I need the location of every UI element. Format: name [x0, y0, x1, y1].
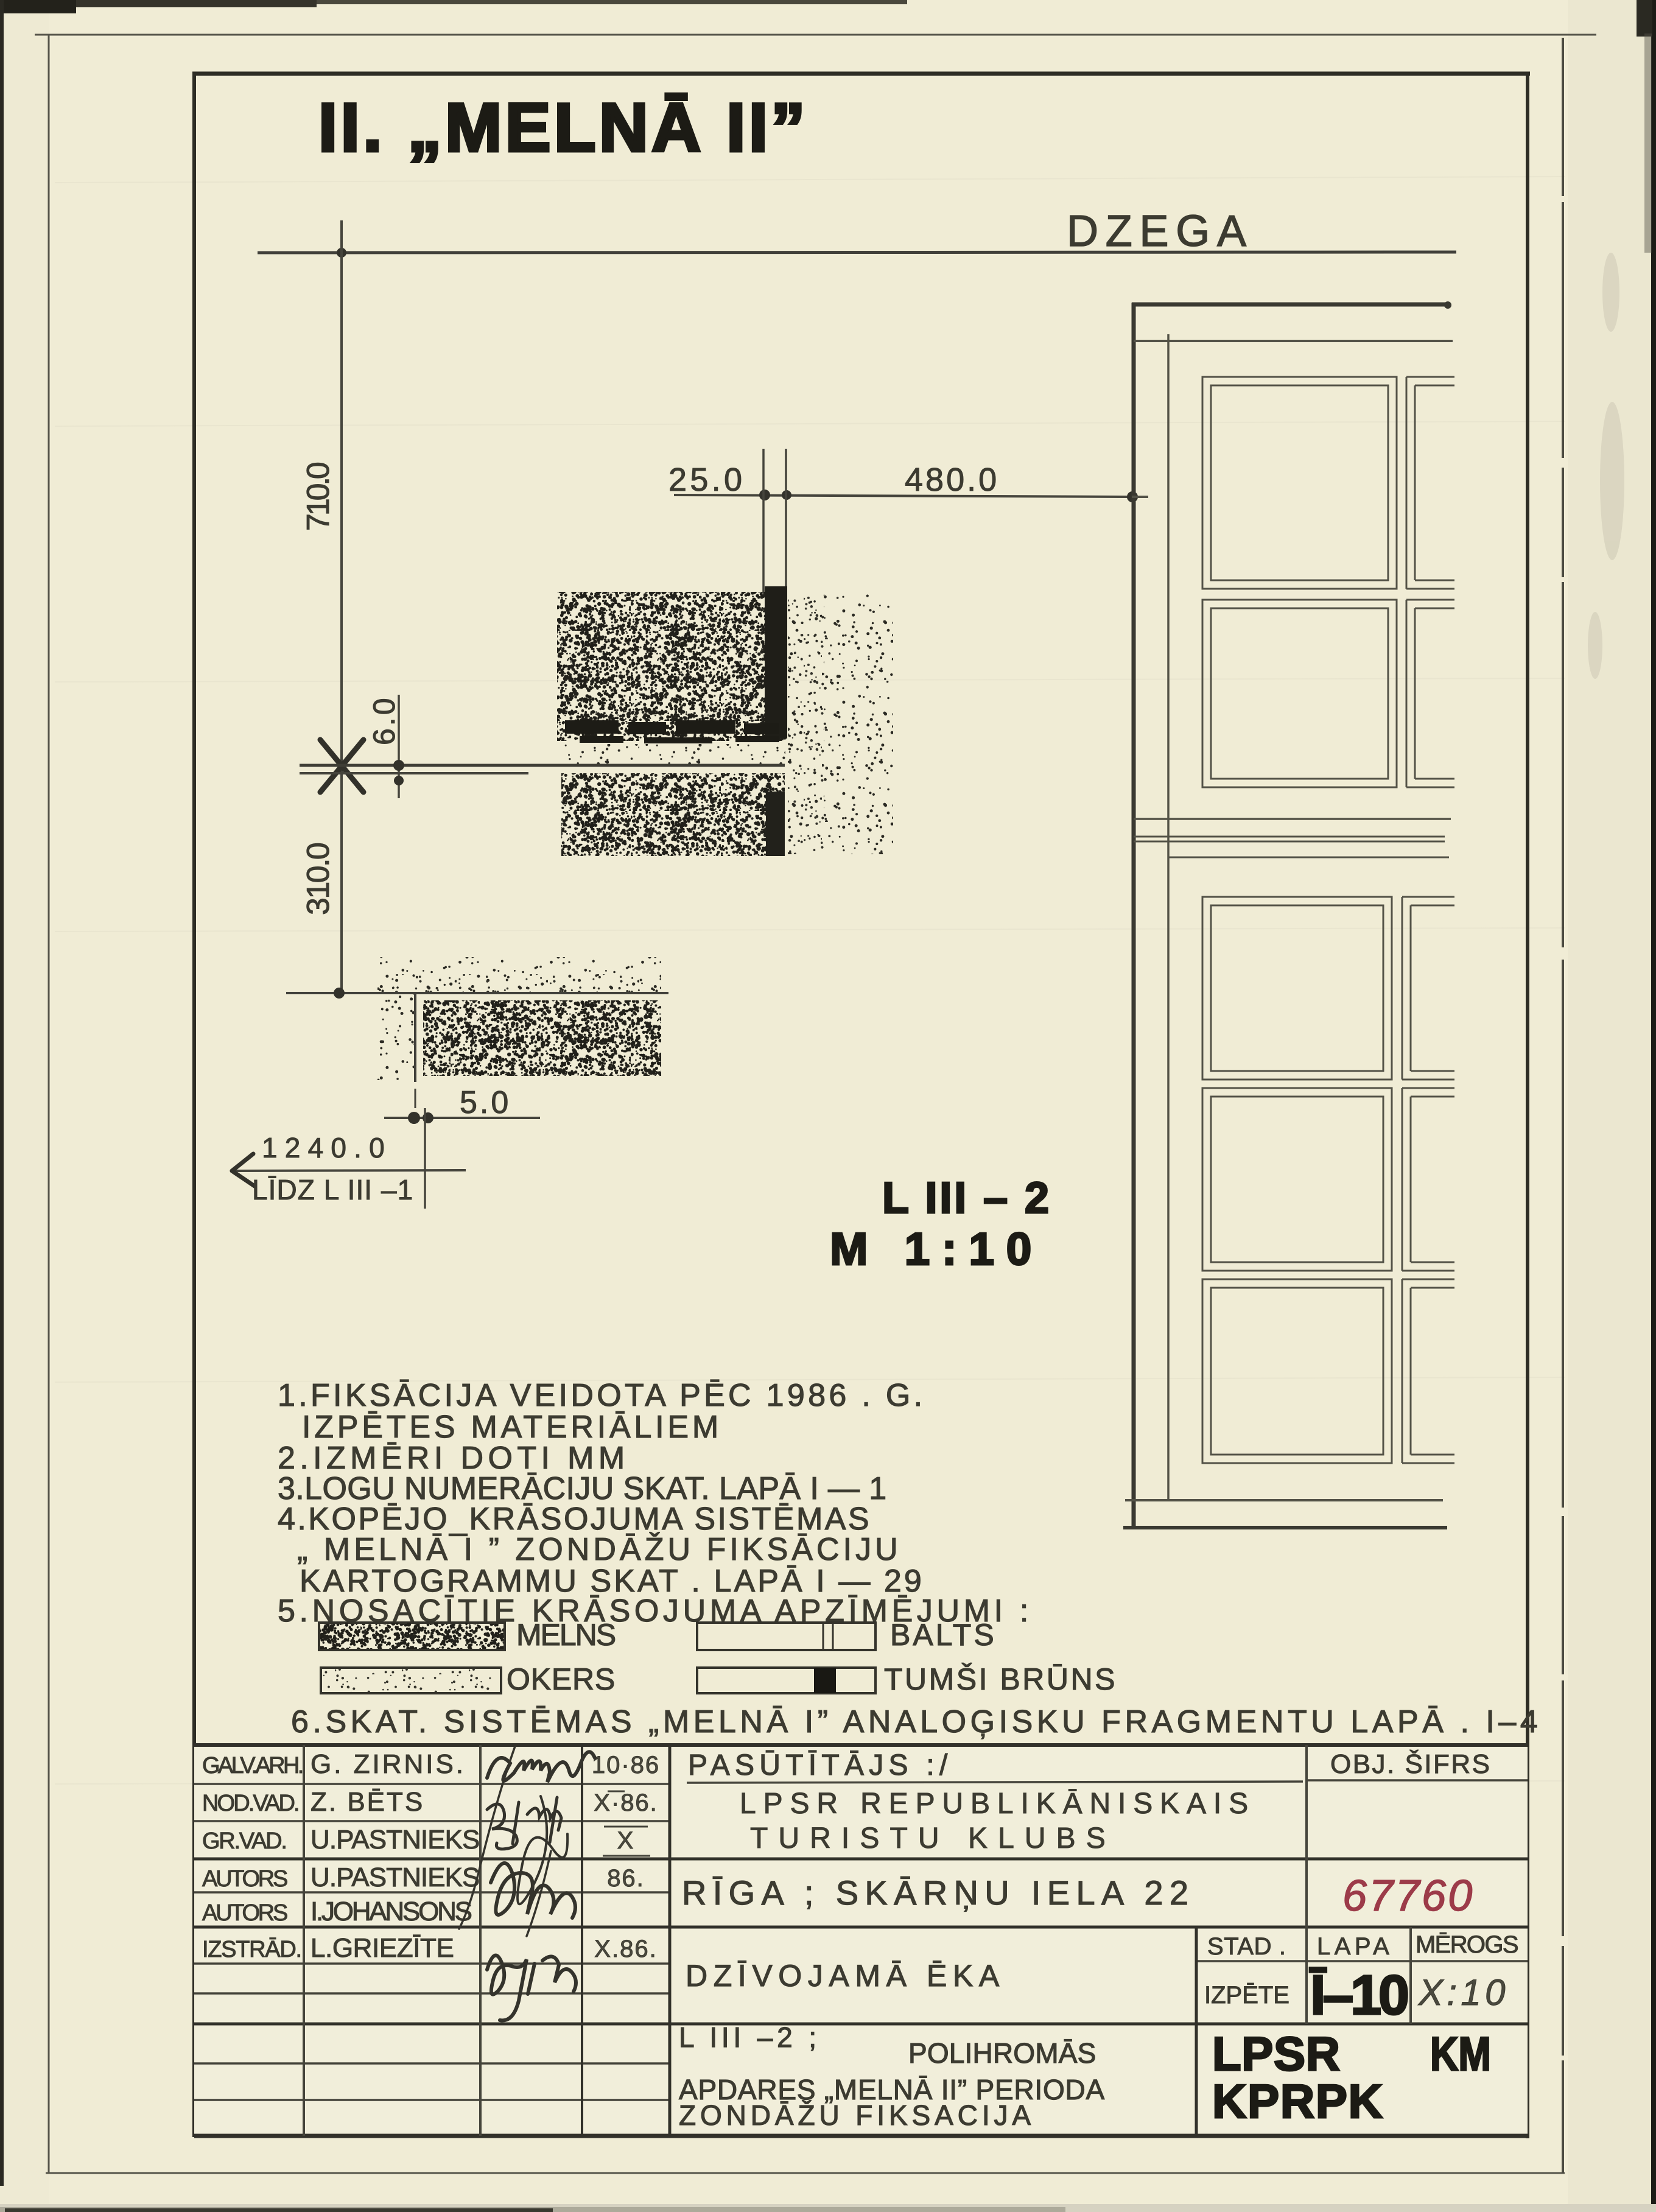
svg-text:Z. BĒTS: Z. BĒTS	[310, 1787, 424, 1817]
svg-text:1.FIKSĀCIJA VEIDOTA PĒC 198: 1.FIKSĀCIJA VEIDOTA PĒC 1986 . G.	[278, 1378, 925, 1413]
svg-text:L III – 2: L III – 2	[882, 1174, 1051, 1223]
svg-text:DZĪVOJAMĀ ĒKA: DZĪVOJAMĀ ĒKA	[686, 1959, 1005, 1993]
svg-text:LĪDZ L III –1: LĪDZ L III –1	[252, 1174, 413, 1206]
svg-text:GR.VAD.: GR.VAD.	[202, 1828, 286, 1854]
svg-text:RĪGA ; SKĀRŅU IELA 22: RĪGA ; SKĀRŅU IELA 22	[682, 1873, 1195, 1912]
svg-text:X.86.: X.86.	[594, 1936, 657, 1962]
svg-text:L III –2 ;: L III –2 ;	[679, 2021, 821, 2053]
svg-text:BALTS: BALTS	[890, 1618, 997, 1652]
svg-text:25.0: 25.0	[668, 462, 745, 498]
svg-text:LPSR: LPSR	[1212, 2027, 1341, 2080]
svg-text:I.JOHANSONS: I.JOHANSONS	[310, 1897, 472, 1926]
svg-text:AUTORS: AUTORS	[202, 1900, 287, 1926]
svg-text:U.PASTNIEKS: U.PASTNIEKS	[310, 1825, 479, 1855]
svg-text:310.0: 310.0	[301, 843, 336, 915]
svg-text:KPRPK: KPRPK	[1212, 2074, 1384, 2128]
svg-text:„ MELNĀ I ” ZONDĀŽU FIKSĀCI: „ MELNĀ I ” ZONDĀŽU FIKSĀCIJU	[297, 1532, 902, 1567]
svg-text:TURISTU KLUBS: TURISTU KLUBS	[750, 1822, 1116, 1855]
svg-text:IZPĒTES MATERIĀLIEM: IZPĒTES MATERIĀLIEM	[302, 1410, 722, 1445]
svg-text:DZEGA: DZEGA	[1067, 207, 1254, 256]
svg-text:MELNS: MELNS	[516, 1618, 616, 1652]
svg-text:IZPĒTE: IZPĒTE	[1204, 1982, 1289, 2009]
svg-text:U.PASTNIEKS: U.PASTNIEKS	[310, 1863, 479, 1892]
svg-text:GALV.ARH.: GALV.ARH.	[202, 1753, 303, 1778]
svg-text:TUMŠI BRŪNS: TUMŠI BRŪNS	[884, 1662, 1117, 1696]
svg-text:6.SKAT. SISTĒMAS „MELNĀ I” ANA: 6.SKAT. SISTĒMAS „MELNĀ I” ANALOĢISKU FR…	[291, 1704, 1542, 1740]
svg-text:X·86.: X·86.	[594, 1789, 658, 1816]
svg-text:67760: 67760	[1342, 1872, 1475, 1920]
svg-text:M 1:10: M 1:10	[830, 1223, 1044, 1274]
svg-text:MĒROGS: MĒROGS	[1416, 1931, 1518, 1958]
svg-text:5.0: 5.0	[460, 1085, 511, 1120]
svg-text:IZSTRĀD.: IZSTRĀD.	[202, 1937, 301, 1962]
svg-text:ZONDĀŽU FIKSACIJA: ZONDĀŽU FIKSACIJA	[679, 2099, 1035, 2131]
svg-text:PASŪTĪTĀJS :/: PASŪTĪTĀJS :/	[688, 1749, 953, 1782]
svg-text:OKERS: OKERS	[507, 1662, 616, 1696]
svg-text:X: X	[617, 1827, 635, 1854]
svg-text:STAD .: STAD .	[1207, 1933, 1286, 1960]
svg-text:LPSR REPUBLIKĀNISKAIS: LPSR REPUBLIKĀNISKAIS	[740, 1788, 1255, 1820]
svg-text:Ī–10: Ī–10	[1310, 1964, 1408, 2026]
svg-text:II. „MELNĀ II”: II. „MELNĀ II”	[318, 90, 809, 166]
svg-text:LAPA: LAPA	[1317, 1933, 1393, 1960]
svg-text:480.0: 480.0	[905, 462, 999, 498]
svg-text:AUTORS: AUTORS	[202, 1866, 287, 1892]
svg-text:10·86: 10·86	[592, 1752, 660, 1778]
svg-text:1240.0: 1240.0	[262, 1132, 392, 1164]
svg-text:POLIHROMĀS: POLIHROMĀS	[908, 2037, 1096, 2069]
svg-text:NOD.VAD.: NOD.VAD.	[202, 1791, 298, 1816]
svg-text:86.: 86.	[607, 1865, 645, 1892]
svg-text:G. ZIRNIS.: G. ZIRNIS.	[310, 1749, 466, 1779]
svg-text:L.GRIEZĪTE: L.GRIEZĪTE	[310, 1933, 454, 1963]
svg-text:710.0: 710.0	[301, 463, 336, 531]
svg-text:OBJ. ŠIFRS: OBJ. ŠIFRS	[1330, 1749, 1492, 1779]
svg-text:X:10: X:10	[1417, 1972, 1509, 2013]
svg-text:KM: KM	[1430, 2027, 1491, 2080]
svg-text:6.0: 6.0	[367, 695, 401, 745]
